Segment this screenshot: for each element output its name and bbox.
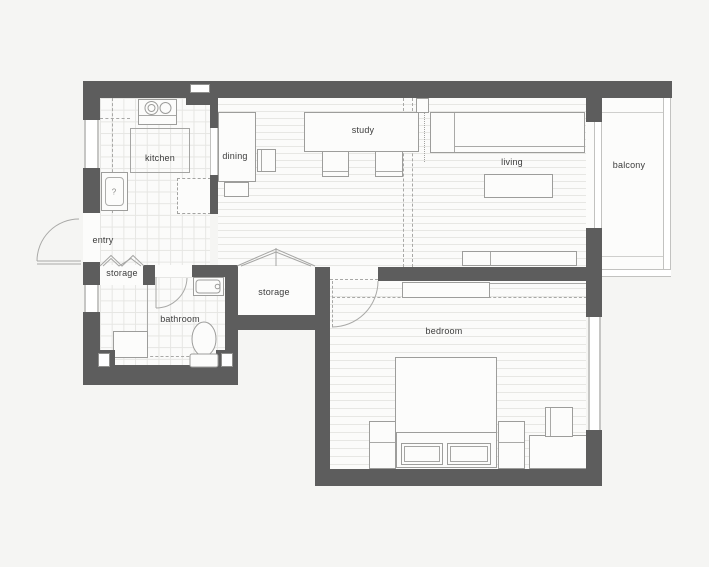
pillow-right-inner (450, 446, 488, 462)
nightstand-right-divider (499, 442, 524, 443)
bathroom-zone-dash (145, 356, 215, 357)
floor-plan: ? (0, 0, 709, 567)
bathroom-sink (193, 277, 224, 296)
balcony-floor (602, 98, 663, 269)
shower-partition (147, 281, 148, 331)
balcony-label: balcony (613, 160, 645, 170)
kitchen-island (130, 128, 190, 173)
storage-hall-label: storage (106, 268, 137, 278)
kitchen-dining-wall-lower (210, 175, 218, 214)
coffee-table (484, 174, 553, 198)
nightstand-left-divider (370, 442, 395, 443)
kitchen-soffit-line-h (100, 118, 130, 119)
fridge (177, 178, 211, 214)
dining-chair-bottom (224, 182, 249, 197)
bedroom-corner-desk (529, 435, 587, 469)
window-left-lower (84, 285, 99, 312)
shower-tray (113, 331, 148, 358)
right-wall-upper (586, 228, 602, 317)
nightstand-right (498, 421, 525, 469)
nightstand-left (369, 421, 396, 469)
bathroom-door-threshold (155, 265, 192, 277)
study-chair-1-back-line (323, 171, 348, 172)
balcony-door-glass (594, 122, 602, 228)
living-bedroom-wall (378, 267, 602, 281)
storage-inner-label: storage (258, 287, 289, 297)
wall-left-mid (83, 168, 100, 213)
pillow-left-inner (404, 446, 440, 462)
wall-niche-left (98, 353, 110, 367)
bedroom-bottom-wall (315, 469, 602, 486)
bedroom-door-threshold-dash (330, 279, 378, 280)
beam-dotted-line (424, 113, 425, 162)
balcony-door-threshold (586, 122, 594, 228)
washer-question-mark: ? (112, 188, 116, 197)
bedroom-label: bedroom (426, 326, 463, 336)
study-chair-1 (322, 151, 349, 177)
bathroom-bottom-wall (83, 365, 238, 385)
bedroom-left-wall (315, 267, 330, 486)
dining-table (218, 112, 256, 182)
stove-counter-shelf-line (139, 115, 176, 116)
dining-label: dining (222, 151, 247, 161)
wall-top (83, 81, 672, 98)
tv-stand-divider (490, 252, 491, 265)
wall-left-storage (83, 262, 100, 285)
bathroom-label: bathroom (160, 314, 200, 324)
bedroom-door-dash (332, 281, 333, 327)
kitchen-label: kitchen (145, 153, 175, 163)
kitchen-dining-wall-upper (210, 98, 218, 128)
wardrobe-top-line (490, 283, 592, 284)
balcony-stub-wall (586, 98, 602, 122)
window-pier (416, 98, 429, 113)
balcony-line-top (602, 112, 663, 113)
study-chair-2 (375, 151, 403, 177)
entry-door-swing (37, 219, 81, 264)
balcony-glass-right (663, 98, 671, 277)
wall-niche-right (221, 353, 233, 367)
study-label: study (352, 125, 375, 135)
window-bedroom-right (588, 317, 601, 430)
kitchen-vent-niche (190, 84, 210, 93)
entry-label: entry (92, 235, 113, 245)
study-chair-2-back-line (376, 171, 402, 172)
dining-chair-right (257, 149, 276, 172)
bed-body (395, 357, 497, 433)
sofa-seat-line (454, 146, 584, 147)
living-label: living (501, 157, 523, 167)
bedroom-armchair-line (550, 408, 551, 436)
tv-stand (462, 251, 577, 266)
wardrobe (402, 282, 490, 298)
wall-left-upper (83, 98, 100, 120)
kitchen-pass-through-glass (210, 128, 218, 175)
storage-hall-right-wall (143, 265, 155, 285)
dining-chair-right-back-line (261, 150, 262, 171)
window-left-upper (84, 120, 99, 168)
balcony-glass-bottom (602, 269, 671, 277)
stove-counter (138, 99, 177, 125)
bathroom-top-wall (192, 265, 225, 277)
balcony-line-bottom (602, 256, 663, 257)
right-wall-lower (586, 430, 602, 469)
